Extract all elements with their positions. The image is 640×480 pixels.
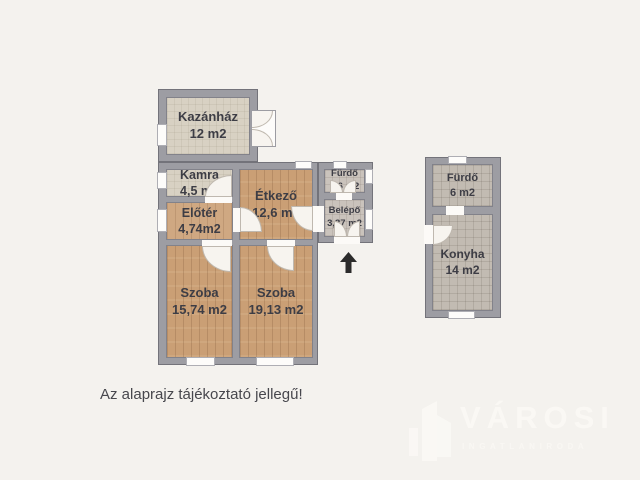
door-opening (233, 208, 240, 232)
window-opening (295, 161, 312, 169)
door-opening (446, 206, 464, 215)
door-opening (313, 206, 324, 232)
room-area: 14 m2 (445, 264, 479, 277)
window-opening (365, 209, 373, 230)
buildings-icon (406, 398, 454, 469)
window-opening (333, 161, 347, 169)
entrance-arrow-icon (340, 252, 357, 278)
room-area: 15,74 m2 (172, 303, 227, 318)
room-label: Szoba (257, 286, 295, 301)
window-opening (365, 169, 373, 184)
room-label: Fürdő (447, 172, 478, 184)
room-furdo-annex: Fürdő 6 m2 (432, 164, 493, 207)
room-eloter: Előtér 4,74m2 (166, 202, 233, 240)
room-label: Étkező (255, 189, 297, 204)
window-opening (157, 124, 167, 146)
door-swing-arc (252, 111, 273, 128)
agency-logo: VÁROSI INGATLANIRODA (406, 396, 636, 468)
window-opening (256, 357, 294, 366)
exterior-double-door (251, 110, 276, 147)
room-label: Kazánház (178, 110, 238, 125)
window-opening (186, 357, 215, 366)
room-area: 4,74m2 (178, 222, 220, 236)
room-area: 19,13 m2 (249, 303, 304, 318)
room-area: 12 m2 (190, 127, 227, 142)
room-label: Előtér (182, 206, 217, 220)
window-opening (448, 156, 467, 164)
door-opening (205, 197, 232, 203)
entry-door-opening (334, 237, 360, 244)
window-opening (157, 209, 167, 232)
room-area: 6 m2 (450, 187, 475, 199)
disclaimer-note: Az alaprajz tájékoztató jellegű! (100, 386, 303, 403)
door-swing-arc (252, 129, 273, 146)
logo-brand-text: VÁROSI (460, 402, 615, 433)
room-label: Szoba (180, 286, 218, 301)
door-opening (336, 193, 352, 200)
room-kazanhaz: Kazánház 12 m2 (166, 97, 250, 155)
room-label: Fürdő (331, 169, 358, 180)
logo-subtitle-text: INGATLANIRODA (462, 442, 588, 451)
room-label: Konyha (440, 248, 484, 261)
room-label: Belépő (329, 206, 361, 217)
window-opening (448, 311, 475, 319)
window-opening (157, 172, 167, 189)
door-opening (424, 225, 433, 244)
floor-plan-image: Kazánház 12 m2 Kamra 4,5 m2 Előtér 4,74m… (0, 0, 640, 480)
